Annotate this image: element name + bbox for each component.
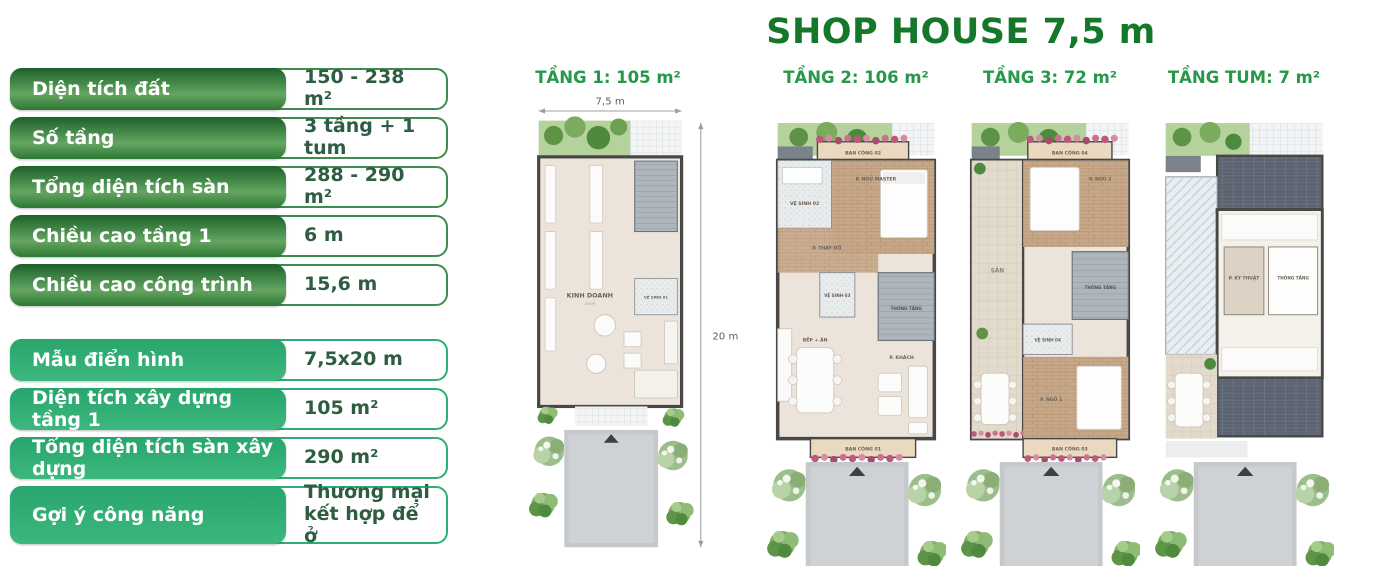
floor-plan-2-image: BAN CÔNG 02 P. NGỦ MASTER VỆ SINH 02 P. … <box>766 95 946 566</box>
spec-label: Số tầng <box>10 117 286 159</box>
spec-label: Diện tích đất <box>10 68 286 110</box>
spec-row-floors: 3 tầng + 1 tum Số tầng <box>10 117 448 159</box>
kitchen-counter <box>778 329 792 401</box>
bed <box>1077 366 1121 429</box>
roof-edge <box>778 146 813 160</box>
void-opening <box>1269 247 1318 315</box>
driveway-and-trees <box>529 430 694 547</box>
room-label-balcony2: BAN CÔNG 02 <box>845 150 881 157</box>
plan-grid: TẦNG 1: 105 m² 7,5 m 20 m <box>528 68 1394 566</box>
room-label-shop: KINH DOANH <box>567 292 613 300</box>
room-label-wc3: VỆ SINH 03 <box>824 293 851 298</box>
driveway-and-trees <box>961 462 1140 566</box>
roof-top <box>1217 156 1322 210</box>
roof-edge <box>972 146 1000 160</box>
spec-label: Chiều cao tầng 1 <box>10 215 286 257</box>
floor-plan-tang-1: TẦNG 1: 105 m² 7,5 m 20 m <box>528 68 752 560</box>
room-label-void: THÔNG TẦNG <box>891 306 923 311</box>
shophouse-infographic: 150 - 238 m² Diện tích đất 3 tầng + 1 tu… <box>0 0 1400 566</box>
spec-row-building-height: 15,6 m Chiều cao công trình <box>10 264 448 306</box>
spec-label: Gợi ý công năng <box>10 486 286 544</box>
floor-plan-1-image: 7,5 m 20 m VỆ SINH 01 <box>528 95 752 560</box>
spec-label: Tổng diện tích sàn xây dựng <box>10 437 286 479</box>
room-label-wc1: VỆ SINH 01 <box>644 295 668 300</box>
driveway-and-trees <box>1155 462 1334 566</box>
spec-label: Diện tích xây dựng tầng 1 <box>10 388 286 430</box>
floor-plan-tang-2: TẦNG 2: 106 m² BAN CÔNG 02 P. NGỦ MASTER <box>766 68 946 566</box>
floor-plan-title: TẦNG TUM: 7 m² <box>1154 68 1334 87</box>
outdoor-table <box>1175 373 1203 427</box>
spec-row-floor1-build-area: 105 m² Diện tích xây dựng tầng 1 <box>10 388 448 430</box>
floor-plan-title: TẦNG 2: 106 m² <box>766 68 946 87</box>
spec-table: 150 - 238 m² Diện tích đất 3 tầng + 1 tu… <box>10 68 448 551</box>
room-label-void: THÔNG TẦNG <box>1085 285 1117 290</box>
floor-plan-title: TẦNG 1: 105 m² <box>528 68 688 87</box>
outdoor-table <box>981 373 1009 424</box>
room-label-balcony3: BAN CÔNG 03 <box>1052 445 1088 452</box>
spec-row-typical-model: 7,5x20 m Mẫu điển hình <box>10 339 448 381</box>
dining-table <box>796 347 833 412</box>
room-label-wc4: VỆ SINH 04 <box>1034 338 1061 343</box>
spec-label: Chiều cao công trình <box>10 264 286 306</box>
spec-row-floor1-height: 6 m Chiều cao tầng 1 <box>10 215 448 257</box>
spec-row-function-suggestion: Thương mại kết hợp để ở Gợi ý công năng <box>10 486 448 544</box>
driveway-and-trees <box>767 462 946 566</box>
tile-patio <box>630 121 681 157</box>
walkway <box>1166 441 1248 457</box>
floor-plan-tang-3: TẦNG 3: 72 m² BAN CÔNG 04 SÂN <box>960 68 1140 566</box>
bed <box>1030 167 1079 230</box>
spec-label: Mẫu điển hình <box>10 339 286 381</box>
roof-bottom <box>1217 378 1322 436</box>
room-label-balcony4: BAN CÔNG 04 <box>1052 150 1089 157</box>
floor-plan-3-image: BAN CÔNG 04 SÂN P. NG <box>960 95 1140 566</box>
dimension-height-label: 20 m <box>712 331 738 342</box>
room-label-balcony1: BAN CÔNG 01 <box>845 445 881 452</box>
room-label-void: THÔNG TẦNG <box>1277 276 1309 281</box>
floor-plan-title: TẦNG 3: 72 m² <box>960 68 1140 87</box>
staircase <box>635 161 678 231</box>
floor-plan-4-image: P. KỸ THUẬT THÔNG TẦNG <box>1154 95 1334 566</box>
room-label-technical: P. KỸ THUẬT <box>1229 275 1260 282</box>
floor-plans-section: SHOP HOUSE 7,5 m TẦNG 1: 105 m² 7,5 m 20… <box>528 12 1394 566</box>
spec-group-building: 150 - 238 m² Diện tích đất 3 tầng + 1 tu… <box>10 68 448 306</box>
room-label-living: P. KHÁCH <box>889 354 913 361</box>
round-table <box>594 315 615 336</box>
spec-label: Tổng diện tích sàn <box>10 166 286 208</box>
spec-row-total-floor-area: 288 - 290 m² Tổng diện tích sàn <box>10 166 448 208</box>
spec-row-total-build-area: 290 m² Tổng diện tích sàn xây dựng <box>10 437 448 479</box>
page-title: SHOP HOUSE 7,5 m <box>528 12 1394 52</box>
spec-row-land-area: 150 - 238 m² Diện tích đất <box>10 68 448 110</box>
room-label-terrace: SÂN <box>991 268 1005 275</box>
roof-edge <box>1166 156 1201 172</box>
floor-plan-tang-tum: TẦNG TUM: 7 m² P. KỸ THUẬT <box>1154 68 1334 566</box>
round-table <box>587 354 606 373</box>
room-label-shop-sub: SHOP <box>585 302 596 306</box>
spec-group-model: 7,5x20 m Mẫu điển hình 105 m² Diện tích … <box>10 339 448 544</box>
dimension-width-label: 7,5 m <box>596 97 625 108</box>
